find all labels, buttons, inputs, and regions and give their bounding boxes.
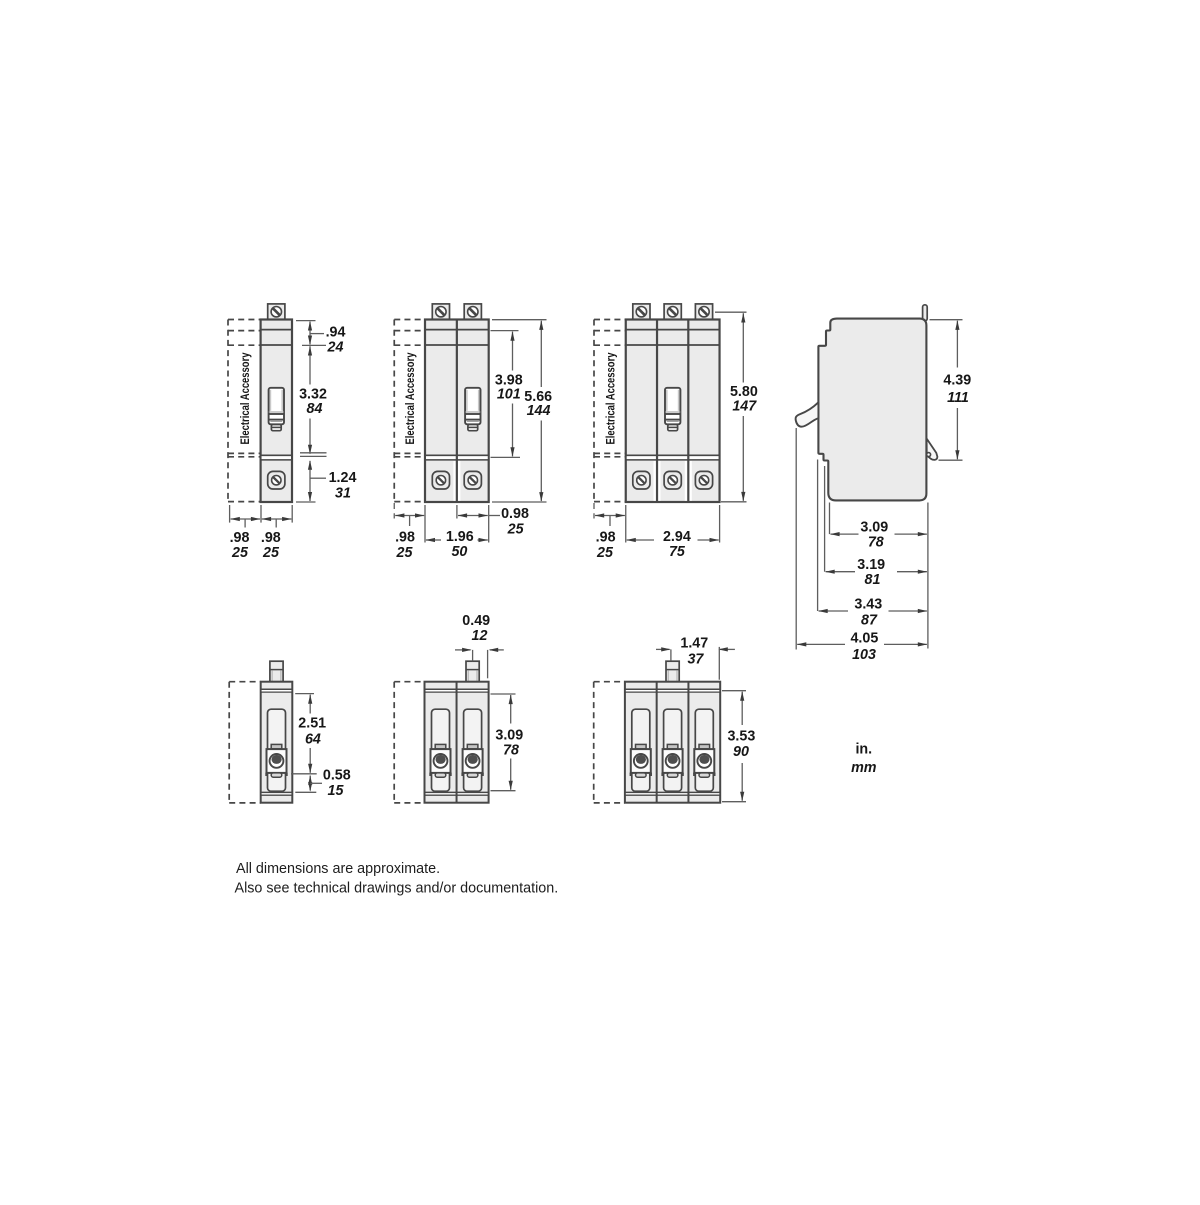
svg-text:37: 37 — [687, 651, 704, 667]
svg-text:12: 12 — [472, 628, 488, 644]
svg-text:Electrical Accessory: Electrical Accessory — [238, 352, 252, 444]
svg-text:31: 31 — [335, 485, 351, 501]
svg-text:87: 87 — [861, 613, 878, 629]
svg-text:25: 25 — [507, 522, 525, 538]
svg-text:3.32: 3.32 — [299, 386, 327, 402]
svg-text:81: 81 — [865, 572, 881, 588]
svg-text:144: 144 — [527, 403, 551, 419]
svg-text:4.05: 4.05 — [850, 631, 878, 647]
svg-text:1.47: 1.47 — [680, 635, 708, 651]
svg-text:1.96: 1.96 — [446, 529, 474, 545]
svg-text:0.98: 0.98 — [501, 506, 529, 522]
svg-text:3.53: 3.53 — [727, 728, 755, 744]
svg-text:84: 84 — [307, 401, 323, 417]
svg-text:111: 111 — [947, 390, 969, 406]
svg-text:103: 103 — [852, 647, 876, 663]
svg-text:2.51: 2.51 — [298, 716, 326, 732]
svg-text:mm: mm — [851, 760, 877, 776]
svg-text:.98: .98 — [596, 530, 616, 546]
svg-text:3.43: 3.43 — [854, 597, 882, 613]
svg-text:1.24: 1.24 — [329, 470, 357, 486]
svg-text:64: 64 — [305, 731, 321, 747]
svg-text:All dimensions are approximate: All dimensions are approximate. — [236, 861, 440, 877]
svg-text:25: 25 — [596, 545, 614, 561]
svg-text:3.19: 3.19 — [857, 557, 885, 573]
svg-text:75: 75 — [669, 544, 686, 560]
svg-text:101: 101 — [497, 387, 521, 403]
svg-text:0.49: 0.49 — [462, 613, 490, 629]
svg-text:50: 50 — [451, 544, 467, 560]
svg-text:25: 25 — [231, 545, 249, 561]
svg-text:.98: .98 — [230, 530, 250, 546]
svg-text:25: 25 — [262, 545, 280, 561]
svg-text:3.09: 3.09 — [860, 519, 888, 535]
svg-text:3.09: 3.09 — [495, 727, 523, 743]
svg-text:Electrical Accessory: Electrical Accessory — [403, 352, 417, 444]
svg-text:78: 78 — [868, 534, 884, 550]
svg-text:.98: .98 — [261, 530, 281, 546]
svg-text:2.94: 2.94 — [663, 529, 691, 545]
svg-text:in.: in. — [855, 741, 872, 757]
svg-text:90: 90 — [733, 744, 749, 760]
svg-text:.94: .94 — [326, 324, 346, 340]
svg-text:15: 15 — [328, 783, 345, 799]
svg-text:0.58: 0.58 — [323, 767, 351, 783]
svg-text:4.39: 4.39 — [943, 372, 971, 388]
svg-text:24: 24 — [327, 340, 344, 356]
svg-text:.98: .98 — [395, 530, 415, 546]
svg-text:Electrical Accessory: Electrical Accessory — [603, 352, 617, 444]
svg-text:78: 78 — [503, 742, 519, 758]
svg-text:147: 147 — [732, 399, 757, 415]
svg-text:25: 25 — [396, 545, 414, 561]
svg-text:Also see technical drawings an: Also see technical drawings and/or docum… — [235, 880, 559, 896]
